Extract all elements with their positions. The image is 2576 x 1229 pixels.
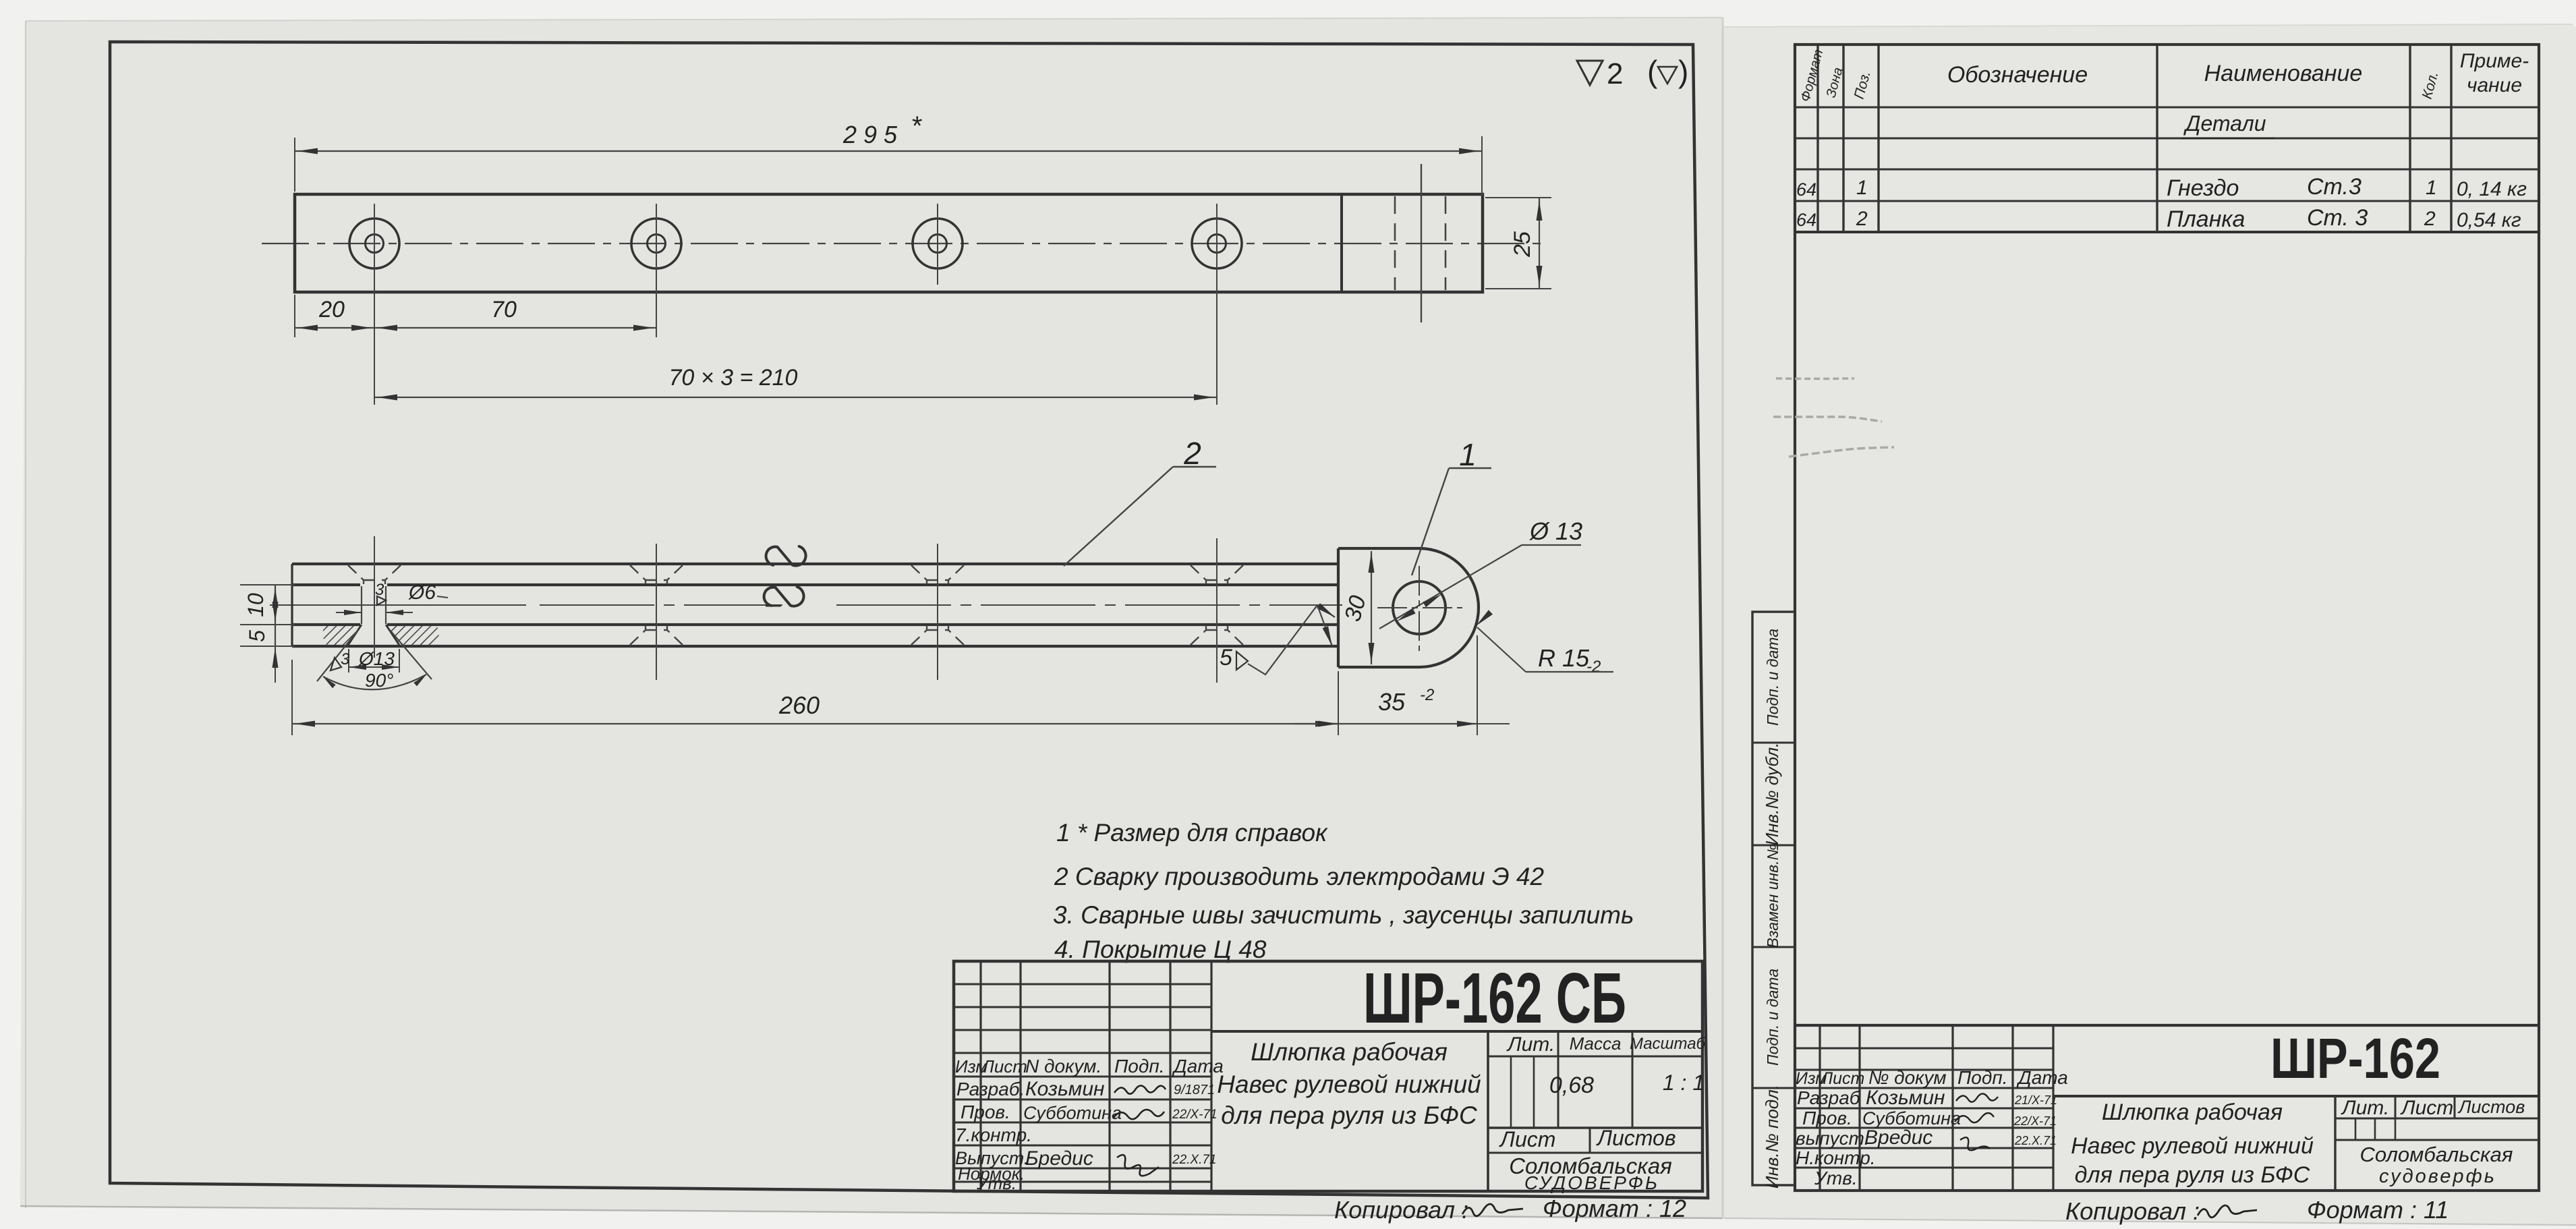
svg-text:64: 64 bbox=[1796, 210, 1816, 230]
svg-text:Лист: Лист bbox=[1820, 1069, 1864, 1088]
svg-text:Утв.: Утв. bbox=[976, 1173, 1017, 1193]
svg-text:выпуст.: выпуст. bbox=[1796, 1128, 1869, 1149]
svg-text:Листов: Листов bbox=[1596, 1126, 1676, 1150]
svg-text:ШР-162: ШР-162 bbox=[2270, 1027, 2440, 1090]
svg-text:(: ( bbox=[1647, 54, 1658, 89]
svg-text:22.X.71: 22.X.71 bbox=[1172, 1153, 1217, 1167]
svg-text:2 Сварку производить элек: 2 Сварку производить электродами Э 42 bbox=[1054, 863, 1544, 890]
svg-text:1 * Размер для справок: 1 * Размер для справок bbox=[1056, 819, 1328, 847]
svg-text:ШР-162 СБ: ШР-162 СБ bbox=[1363, 959, 1626, 1038]
svg-text:0,68: 0,68 bbox=[1549, 1073, 1594, 1098]
svg-text:Козьмин: Козьмин bbox=[1866, 1087, 1945, 1109]
svg-text:1: 1 bbox=[1856, 177, 1868, 199]
svg-text:22/X-71: 22/X-71 bbox=[2013, 1114, 2057, 1128]
svg-text:10: 10 bbox=[244, 593, 268, 617]
svg-text:90°: 90° bbox=[365, 670, 393, 691]
svg-text:судоверфь: судоверфь bbox=[2379, 1166, 2496, 1187]
svg-text:0,54 кг: 0,54 кг bbox=[2457, 209, 2521, 231]
svg-text:Лист: Лист bbox=[1499, 1127, 1555, 1151]
svg-text:Ø6: Ø6 bbox=[408, 581, 436, 604]
svg-text:Лит.: Лит. bbox=[2341, 1097, 2389, 1119]
svg-text:Разраб: Разраб bbox=[1797, 1087, 1861, 1108]
svg-text:Ø 13: Ø 13 bbox=[1529, 517, 1582, 545]
svg-text:0, 14 кг: 0, 14 кг bbox=[2457, 178, 2527, 200]
svg-text:260: 260 bbox=[778, 691, 820, 719]
svg-text:3: 3 bbox=[375, 581, 384, 599]
svg-text:35: 35 bbox=[1378, 688, 1406, 716]
svg-text:Дата: Дата bbox=[1172, 1056, 1224, 1077]
svg-text:7.контр.: 7.контр. bbox=[955, 1124, 1032, 1145]
svg-text:5: 5 bbox=[245, 630, 269, 642]
svg-text:№ докум: № докум bbox=[1868, 1067, 1947, 1088]
svg-text:Взамен инв.№: Взамен инв.№ bbox=[1764, 843, 1781, 948]
svg-text:Приме-: Приме- bbox=[2460, 50, 2529, 72]
svg-text:Масса: Масса bbox=[1570, 1033, 1622, 1054]
svg-text:Копировал :: Копировал : bbox=[2065, 1197, 2200, 1225]
svg-text:): ) bbox=[1678, 54, 1688, 89]
svg-text:2: 2 bbox=[2424, 208, 2436, 230]
svg-text:Лит.: Лит. bbox=[1506, 1033, 1555, 1056]
svg-text:Формат : 11: Формат : 11 bbox=[2307, 1196, 2449, 1224]
svg-text:Инв.№ подл.: Инв.№ подл. bbox=[1762, 1085, 1782, 1189]
svg-text:СУДОВЕРФЬ: СУДОВЕРФЬ bbox=[1524, 1172, 1659, 1193]
svg-text:Инв.№ дубл.: Инв.№ дубл. bbox=[1762, 743, 1782, 846]
svg-text:Ст. 3: Ст. 3 bbox=[2307, 205, 2368, 231]
svg-text:Подп. и дата: Подп. и дата bbox=[1764, 969, 1781, 1066]
svg-text:Гнездо: Гнездо bbox=[2167, 175, 2239, 201]
svg-text:64: 64 bbox=[1796, 179, 1816, 200]
svg-text:70: 70 bbox=[491, 297, 517, 322]
svg-text:Соломбальская: Соломбальская bbox=[2360, 1143, 2513, 1166]
svg-text:Детали: Детали bbox=[2183, 111, 2266, 136]
svg-text:Дата: Дата bbox=[2016, 1067, 2068, 1088]
svg-text:Утв.: Утв. bbox=[1814, 1168, 1858, 1189]
svg-text:Шлюпка рабочая: Шлюпка рабочая bbox=[1251, 1038, 1448, 1066]
svg-text:4. Покрытие Ц 48: 4. Покрытие Ц 48 bbox=[1054, 936, 1267, 963]
svg-text:Навес рулевой нижний: Навес рулевой нижний bbox=[2071, 1133, 2314, 1159]
svg-text:Подп.: Подп. bbox=[1957, 1067, 2008, 1088]
svg-text:70 × 3 = 210: 70 × 3 = 210 bbox=[669, 365, 798, 391]
svg-text:Наименование: Наименование bbox=[2204, 61, 2363, 86]
svg-text:Н.контр.: Н.контр. bbox=[1796, 1147, 1876, 1168]
svg-text:Формат : 12: Формат : 12 bbox=[1543, 1195, 1686, 1222]
svg-text:Копировал :: Копировал : bbox=[1334, 1196, 1468, 1224]
svg-text:9/1871: 9/1871 bbox=[1174, 1083, 1215, 1097]
svg-text:2 9 5: 2 9 5 bbox=[842, 121, 898, 148]
svg-text:5: 5 bbox=[1220, 645, 1232, 670]
svg-text:Навес рулевой нижний: Навес рулевой нижний bbox=[1217, 1070, 1481, 1098]
svg-text:*: * bbox=[911, 111, 922, 141]
svg-text:Ø13: Ø13 bbox=[358, 648, 395, 669]
svg-text:Бредис: Бредис bbox=[1025, 1147, 1093, 1170]
svg-text:чание: чание bbox=[2467, 74, 2522, 96]
svg-text:-2: -2 bbox=[1586, 658, 1601, 676]
svg-text:для пера руля из БФС: для пера руля из БФС bbox=[2075, 1162, 2310, 1188]
svg-text:Листов: Листов bbox=[2457, 1097, 2525, 1117]
svg-text:Планка: Планка bbox=[2167, 206, 2245, 232]
svg-text:N докум.: N докум. bbox=[1025, 1056, 1101, 1077]
svg-text:Пров.: Пров. bbox=[1802, 1108, 1852, 1128]
svg-text:Подп.: Подп. bbox=[1114, 1056, 1165, 1077]
svg-text:3. Сварные швы зачистить ,: 3. Сварные швы зачистить , заусенцы запи… bbox=[1053, 901, 1634, 929]
svg-text:Козьмин: Козьмин bbox=[1025, 1078, 1105, 1100]
svg-text:22/X-71: 22/X-71 bbox=[1172, 1108, 1218, 1122]
svg-text:25: 25 bbox=[1510, 231, 1535, 258]
svg-text:Обозначение: Обозначение bbox=[1947, 62, 2088, 88]
svg-text:Субботина: Субботина bbox=[1862, 1108, 1961, 1128]
svg-text:-2: -2 bbox=[1420, 686, 1434, 704]
svg-text:1: 1 bbox=[2426, 177, 2437, 199]
svg-text:Субботина: Субботина bbox=[1023, 1103, 1122, 1123]
svg-text:21/X-71: 21/X-71 bbox=[2014, 1093, 2057, 1107]
svg-text:1: 1 bbox=[1459, 437, 1477, 472]
svg-text:22.X.71: 22.X.71 bbox=[2014, 1134, 2057, 1147]
svg-text:Пров.: Пров. bbox=[961, 1102, 1010, 1122]
svg-text:2: 2 bbox=[1183, 436, 1201, 471]
svg-text:3: 3 bbox=[341, 650, 350, 668]
svg-text:для пера руля из БФС: для пера руля из БФС bbox=[1221, 1102, 1477, 1129]
svg-text:20: 20 bbox=[318, 297, 345, 322]
svg-text:Лист: Лист bbox=[981, 1056, 1027, 1077]
svg-text:Разраб.: Разраб. bbox=[956, 1079, 1025, 1099]
svg-text:2: 2 bbox=[1607, 57, 1623, 90]
svg-text:Подп. и дата: Подп. и дата bbox=[1764, 629, 1781, 726]
svg-text:Ст.3: Ст.3 bbox=[2307, 174, 2362, 200]
svg-text:1 : 1: 1 : 1 bbox=[1663, 1070, 1705, 1095]
svg-text:2: 2 bbox=[1856, 208, 1868, 230]
svg-text:Масштаб: Масштаб bbox=[1630, 1035, 1707, 1053]
svg-text:Вредис: Вредис bbox=[1864, 1126, 1933, 1149]
svg-text:Лист: Лист bbox=[2400, 1097, 2453, 1119]
svg-text:Шлюпка рабочая: Шлюпка рабочая bbox=[2102, 1099, 2283, 1125]
svg-text:R 15: R 15 bbox=[1538, 644, 1590, 672]
